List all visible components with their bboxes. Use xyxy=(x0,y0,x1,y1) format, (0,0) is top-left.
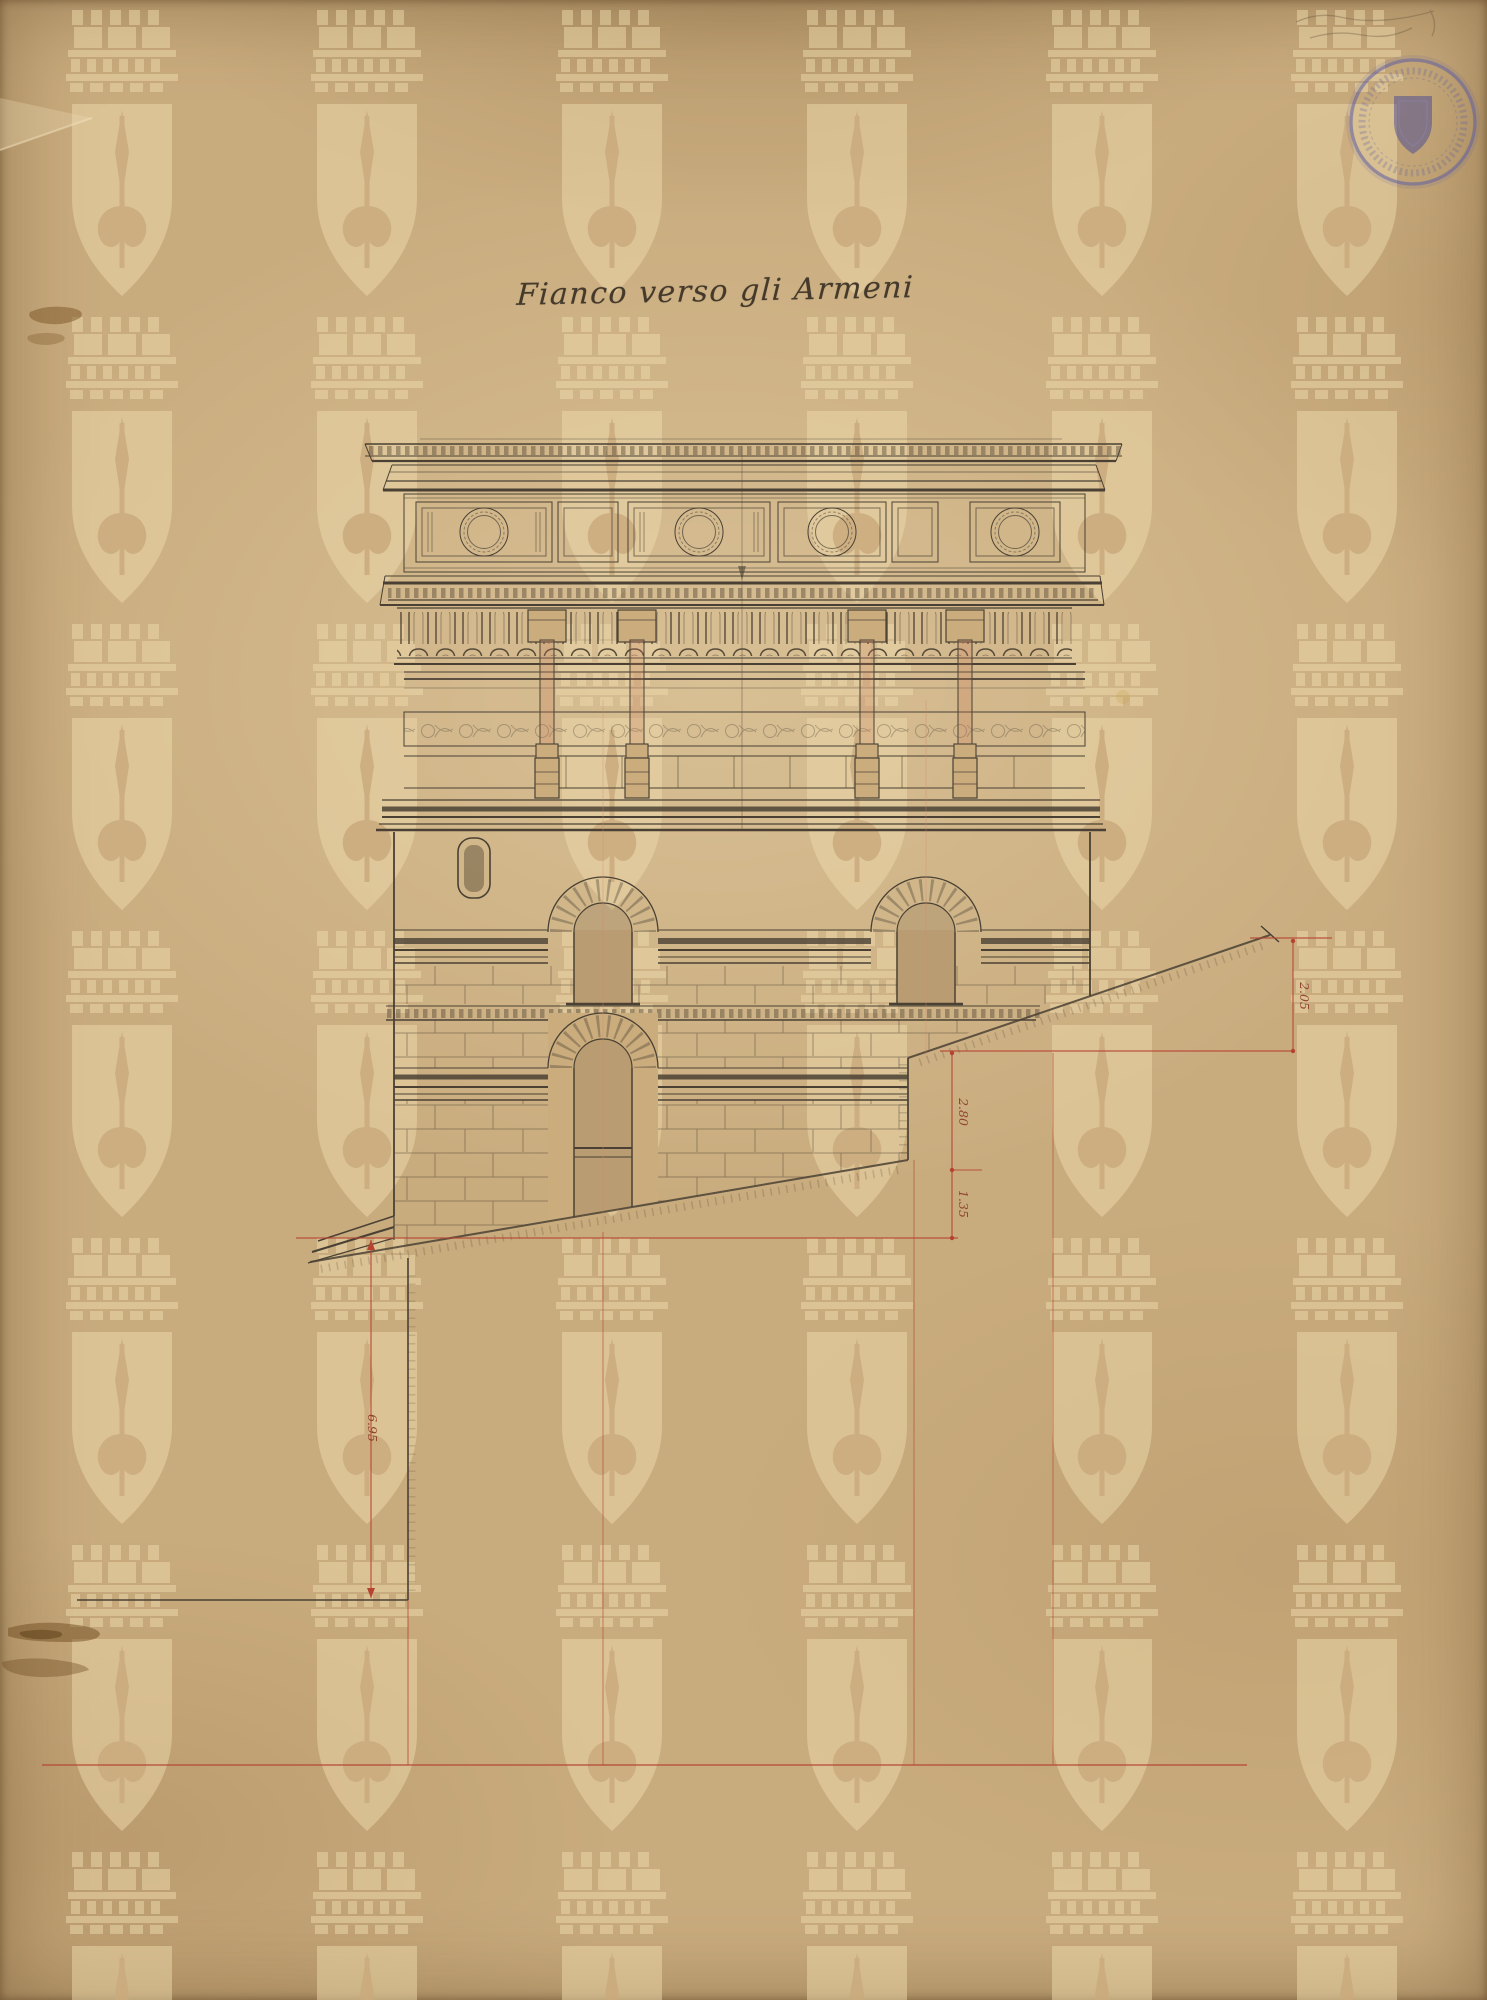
paper-spot xyxy=(1116,690,1130,704)
scroll-frieze xyxy=(404,712,1085,746)
drawing-title: Fianco verso gli Armeni xyxy=(504,270,926,328)
ashlar-masonry xyxy=(394,966,1090,1004)
dimension-label-left: 6.95 xyxy=(365,1414,380,1442)
scanned-drawing-page: 2.05 2.80 1.35 6.95 Fianco verso gli Arm… xyxy=(0,0,1487,2000)
dimension-label-middle-lower: 1.35 xyxy=(956,1190,971,1218)
dimension-label-middle-upper: 2.80 xyxy=(956,1097,971,1126)
dimension-label-right-upper: 2.05 xyxy=(1297,981,1312,1010)
